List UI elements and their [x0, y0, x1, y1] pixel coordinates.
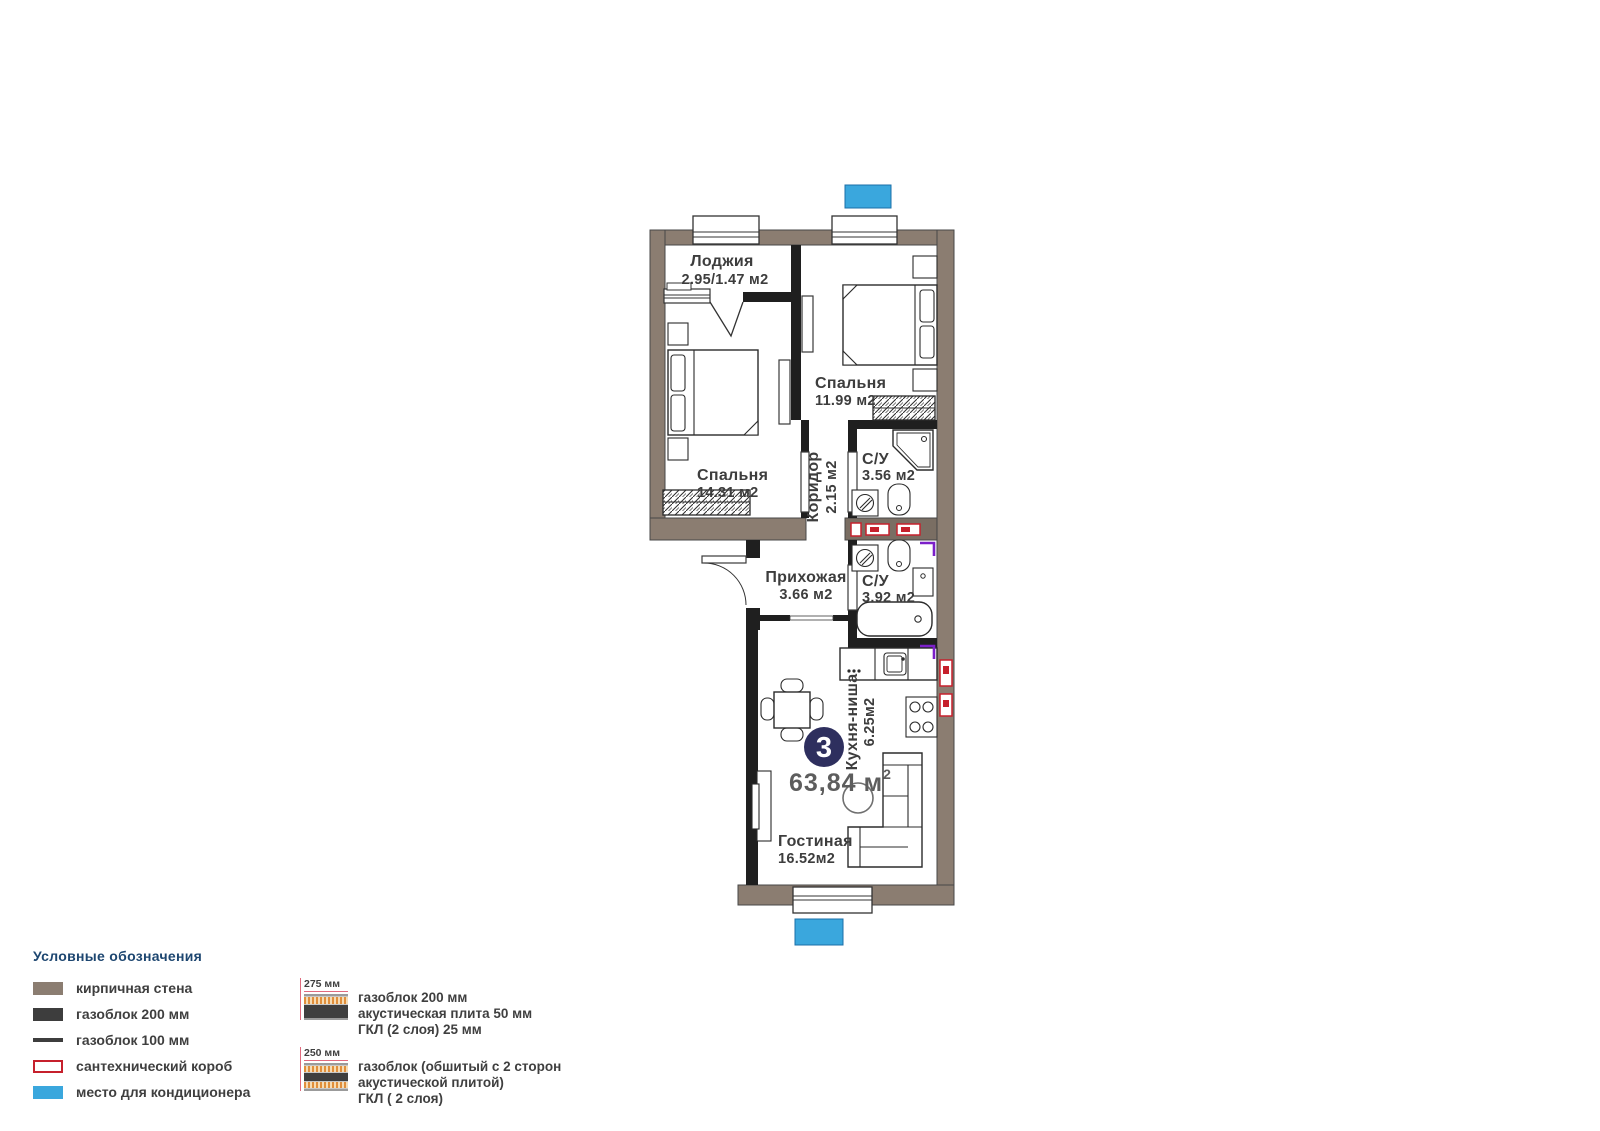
stove-icon	[906, 697, 937, 737]
pillow-icon	[671, 355, 685, 391]
svg-text:6.25м2: 6.25м2	[862, 698, 878, 747]
nightstand-icon	[668, 323, 688, 345]
block-100-swatch	[33, 1038, 63, 1042]
pillow-icon	[920, 326, 934, 358]
floorplan-page: 3 63,84м2 Лоджия 2.95/1.47 м2 Спальня 11…	[0, 0, 1600, 1131]
assembly-250: 250 мм газоблок (обшитый с 2 сторон акус…	[300, 1047, 561, 1108]
window-bedroom1	[832, 216, 897, 244]
chair-icon	[761, 698, 774, 720]
svg-text:2.15 м2: 2.15 м2	[824, 460, 840, 513]
sink-icon	[913, 568, 933, 596]
assembly-275: 275 мм газоблок 200 мм акустическая плит…	[300, 978, 561, 1039]
balcony-door	[710, 302, 743, 336]
bathroom2-door	[848, 565, 857, 610]
hallway-living-opening	[790, 616, 833, 620]
unit-number: 3	[816, 732, 832, 764]
legend: Условные обозначения кирпичная стена газ…	[33, 948, 250, 1110]
dining-table-icon	[774, 692, 810, 728]
room-label-kitchen: Кухня-ниша	[844, 674, 861, 771]
svg-text:14.31 м2: 14.31 м2	[697, 485, 759, 501]
room-label-hallway: Прихожая	[765, 569, 846, 586]
legend-assemblies: 275 мм газоблок 200 мм акустическая плит…	[300, 978, 561, 1115]
pillow-icon	[920, 290, 934, 322]
legend-item-block-100: газоблок 100 мм	[33, 1032, 250, 1048]
assembly-275-swatch	[304, 994, 348, 1020]
window-living	[793, 887, 872, 913]
svg-text:11.99 м2: 11.99 м2	[815, 393, 876, 409]
brick-wall-swatch	[33, 982, 63, 995]
bedroom2-door-leaf	[779, 360, 790, 424]
room-label-corridor: Коридор	[805, 452, 822, 523]
legend-item-ac-place: место для кондиционера	[33, 1084, 250, 1100]
room-label-bedroom1: Спальня	[815, 375, 886, 392]
entrance-door	[702, 556, 746, 605]
ac-place-bottom	[795, 919, 843, 945]
svg-text:3.92 м2: 3.92 м2	[862, 590, 915, 606]
nightstand-icon	[913, 369, 937, 391]
svg-text:3.56 м2: 3.56 м2	[862, 468, 915, 484]
svg-text:2.95/1.47 м2: 2.95/1.47 м2	[682, 272, 769, 288]
legend-item-plumbing-box: сантехнический короб	[33, 1058, 250, 1074]
window-loggia	[693, 216, 759, 244]
legend-item-brick-wall: кирпичная стена	[33, 980, 250, 996]
ac-place-top	[845, 185, 891, 208]
total-area: 63,84м2	[789, 766, 892, 797]
bedroom1-door-leaf	[802, 296, 813, 352]
legend-title: Условные обозначения	[33, 948, 250, 964]
assembly-275-dim: 275 мм	[304, 978, 348, 992]
chair-icon	[781, 679, 803, 692]
ac-place-swatch	[33, 1086, 63, 1099]
svg-text:16.52м2: 16.52м2	[778, 851, 835, 867]
room-label-bedroom2: Спальня	[697, 467, 768, 484]
svg-text:3.66 м2: 3.66 м2	[779, 587, 832, 603]
plumbing-shaft-band	[845, 518, 937, 540]
chair-icon	[781, 728, 803, 741]
block-200-swatch	[33, 1008, 63, 1021]
plumbing-box-swatch	[33, 1060, 63, 1073]
room-label-bathroom1: С/У	[862, 451, 890, 468]
pillow-icon	[671, 395, 685, 431]
assembly-250-swatch	[304, 1063, 348, 1091]
room-label-loggia: Лоджия	[690, 253, 753, 270]
legend-item-block-200: газоблок 200 мм	[33, 1006, 250, 1022]
chair-icon	[810, 698, 823, 720]
room-label-living: Гостиная	[778, 833, 853, 850]
assembly-250-dim: 250 мм	[304, 1047, 348, 1061]
nightstand-icon	[913, 256, 937, 278]
room-label-bathroom2: С/У	[862, 573, 890, 590]
shower-icon	[893, 430, 933, 470]
nightstand-icon	[668, 438, 688, 460]
